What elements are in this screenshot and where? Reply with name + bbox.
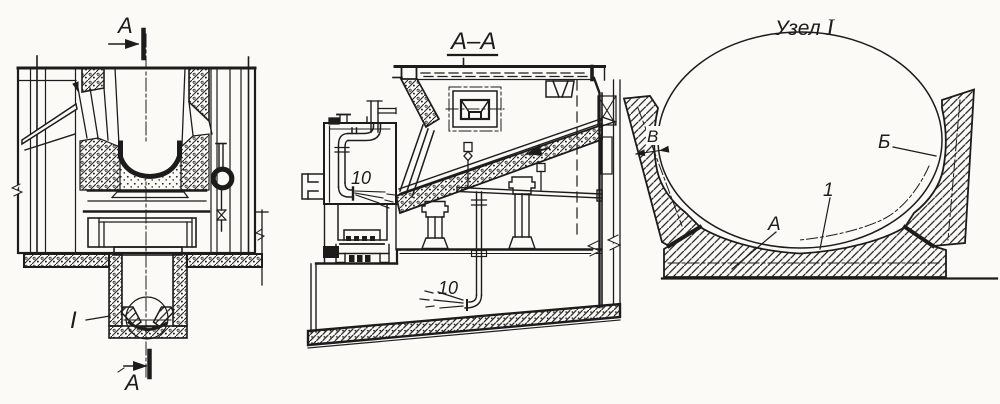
svg-text:А: А	[767, 214, 781, 235]
svg-text:Узел I: Узел I	[774, 15, 835, 40]
svg-text:Б: Б	[878, 132, 890, 153]
svg-text:А–А: А–А	[449, 28, 496, 55]
svg-text:1: 1	[823, 180, 834, 201]
svg-text:I: I	[70, 307, 77, 334]
svg-text:10: 10	[438, 278, 458, 298]
svg-text:А: А	[116, 13, 133, 38]
svg-text:А: А	[123, 370, 140, 395]
svg-text:В: В	[647, 127, 658, 146]
svg-text:10: 10	[351, 168, 371, 188]
